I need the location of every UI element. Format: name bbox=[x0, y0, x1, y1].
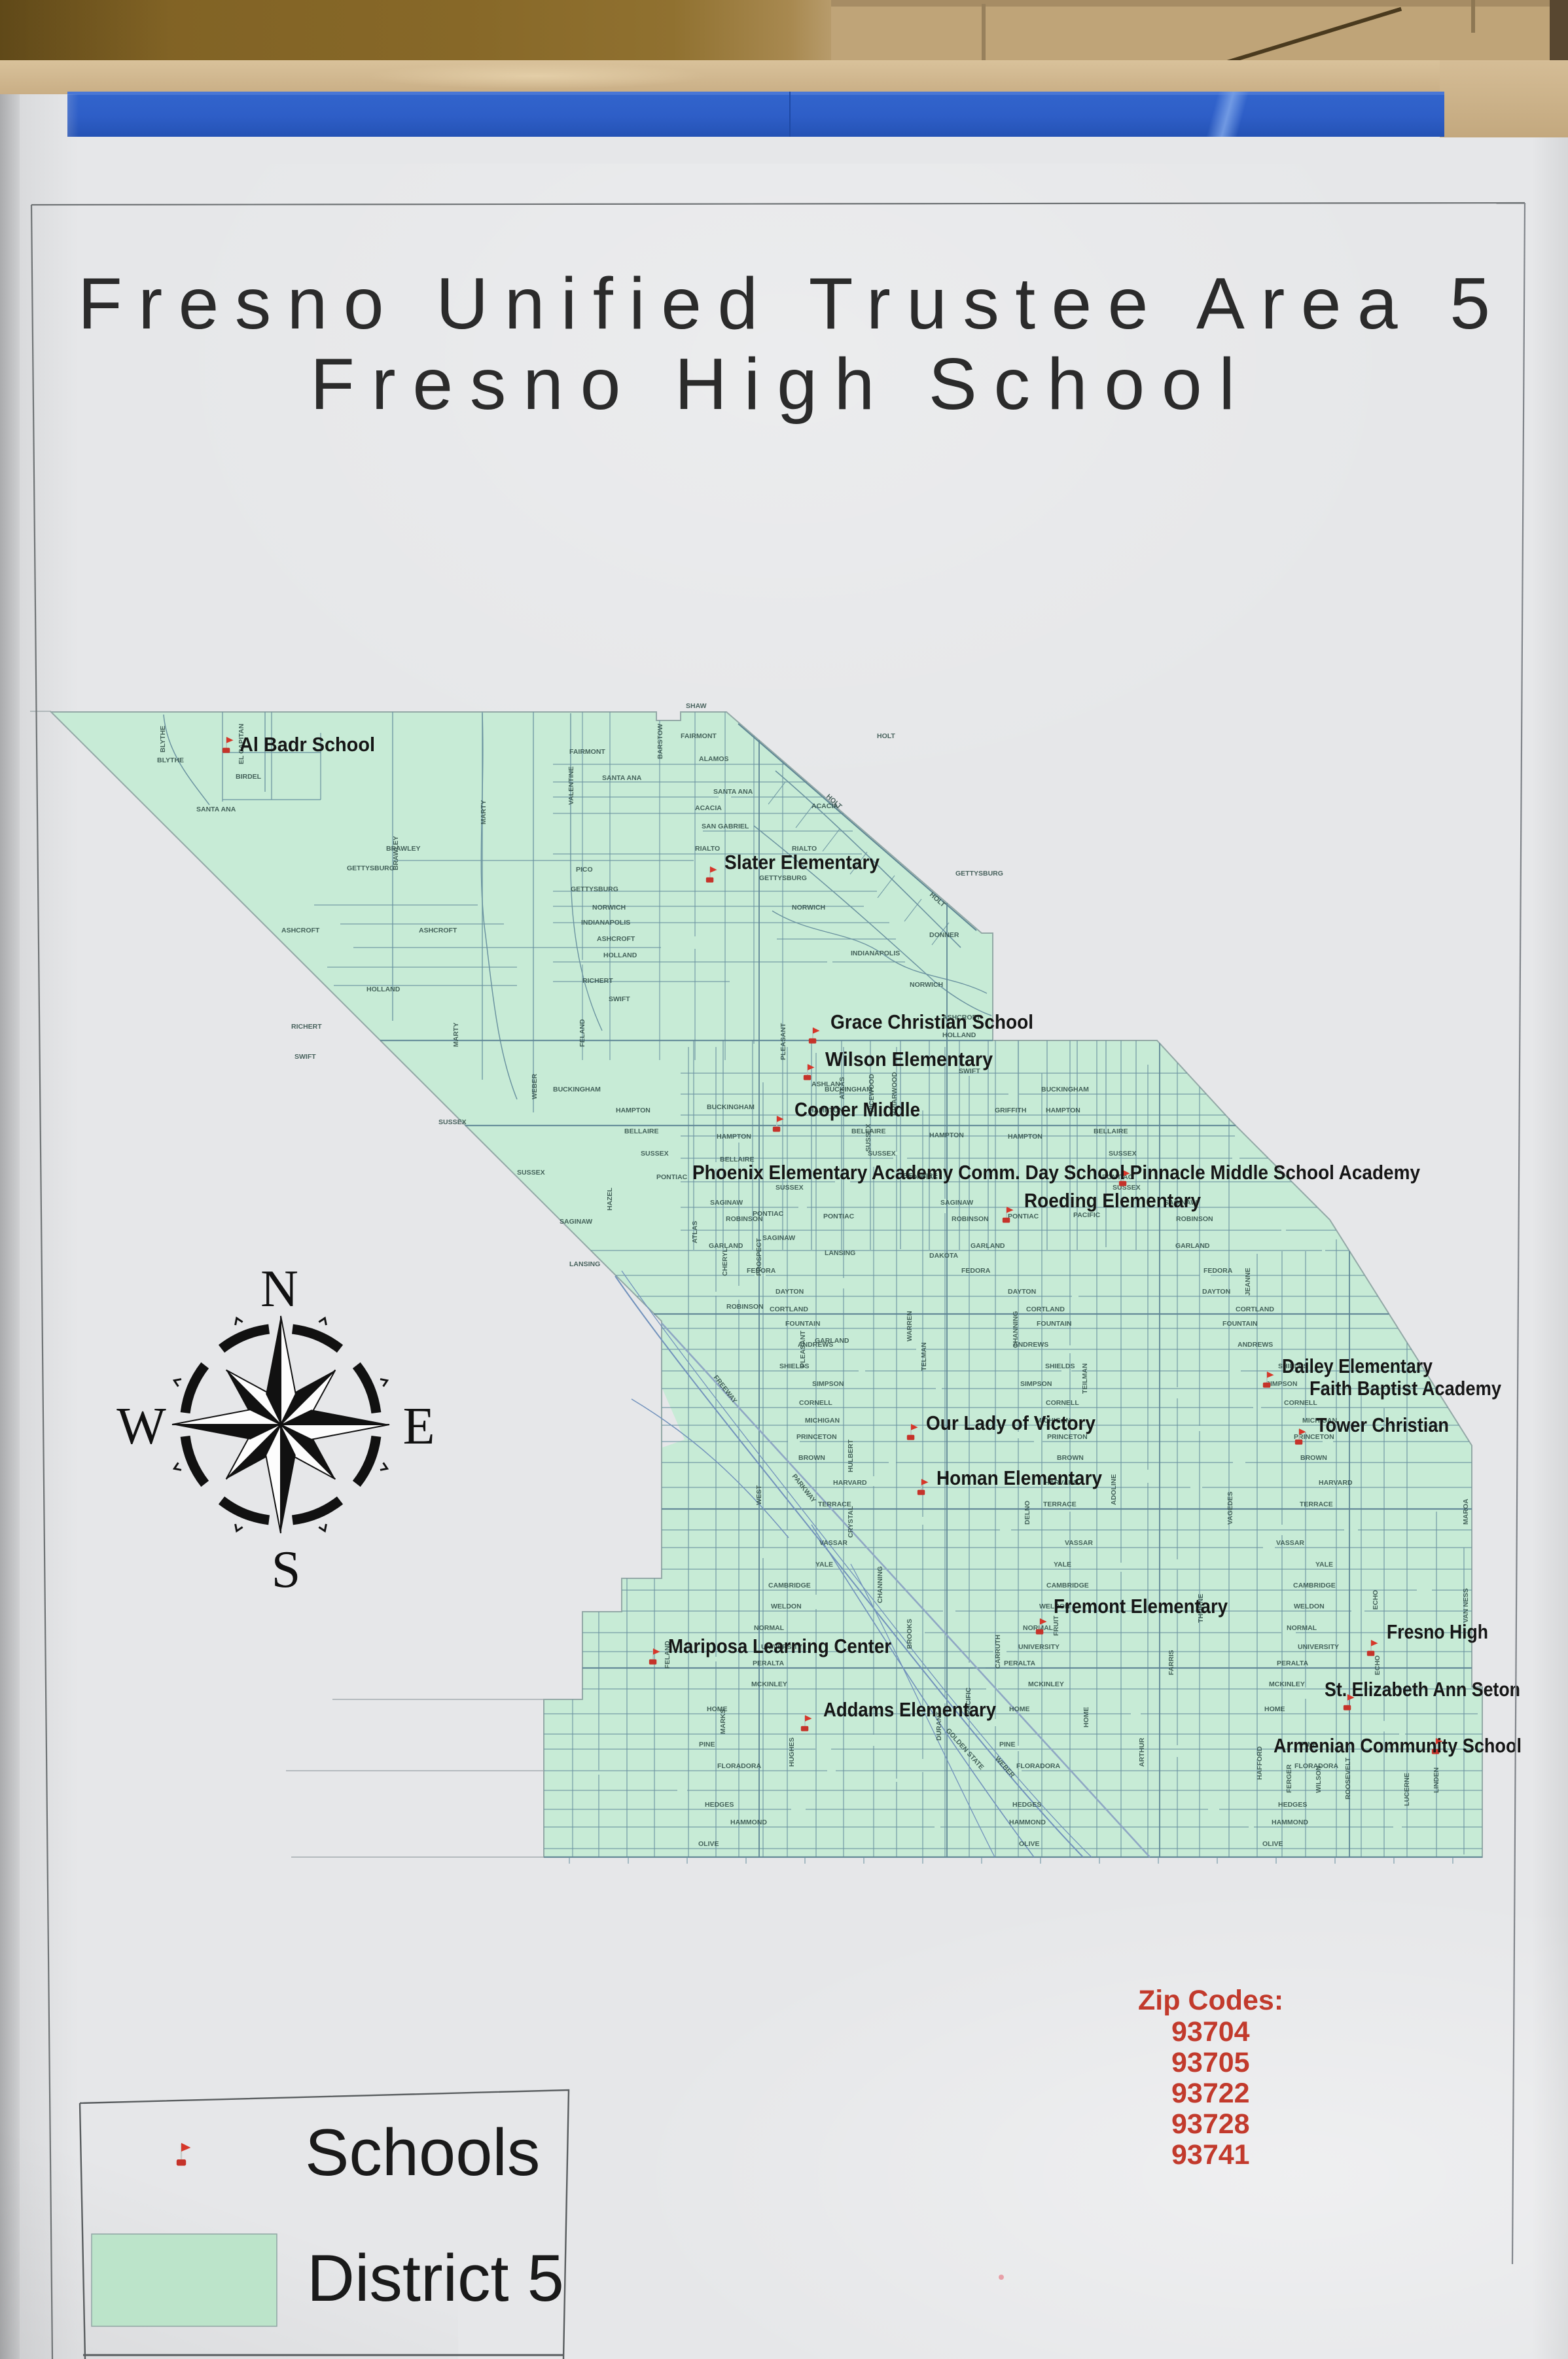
svg-text:Cooper Middle: Cooper Middle bbox=[794, 1098, 920, 1121]
svg-text:N: N bbox=[260, 1260, 298, 1318]
svg-text:PLEASANT: PLEASANT bbox=[799, 1330, 807, 1368]
svg-text:VALENTINE: VALENTINE bbox=[567, 766, 575, 805]
svg-text:CORNELL: CORNELL bbox=[1046, 1399, 1079, 1407]
svg-text:BLYTHE: BLYTHE bbox=[159, 726, 167, 753]
svg-text:FEDORA: FEDORA bbox=[1203, 1267, 1233, 1275]
svg-text:HAMPTON: HAMPTON bbox=[616, 1107, 650, 1114]
svg-text:Our Lady of Victory: Our Lady of Victory bbox=[926, 1411, 1096, 1434]
svg-text:LUCERNE: LUCERNE bbox=[1403, 1773, 1411, 1806]
svg-text:Armenian Community School: Armenian Community School bbox=[1274, 1734, 1522, 1757]
svg-text:HAMMOND: HAMMOND bbox=[730, 1818, 767, 1826]
svg-text:S: S bbox=[272, 1541, 301, 1599]
svg-text:SUSSEX: SUSSEX bbox=[1109, 1150, 1137, 1158]
svg-text:FLORADORA: FLORADORA bbox=[717, 1762, 761, 1770]
svg-text:SUSSEX: SUSSEX bbox=[775, 1184, 804, 1192]
svg-text:VAN NESS: VAN NESS bbox=[1462, 1588, 1470, 1623]
svg-text:Grace Christian School: Grace Christian School bbox=[830, 1010, 1033, 1033]
svg-text:ASHCROFT: ASHCROFT bbox=[597, 935, 635, 943]
svg-text:Fresno Unified Trustee Area 5: Fresno Unified Trustee Area 5 bbox=[78, 263, 1490, 344]
svg-text:SANTA ANA: SANTA ANA bbox=[602, 774, 642, 782]
svg-text:WARREN: WARREN bbox=[906, 1311, 914, 1341]
svg-text:PROSPECT: PROSPECT bbox=[755, 1238, 763, 1276]
svg-text:WEST: WEST bbox=[755, 1485, 763, 1505]
svg-text:UNIVERSITY: UNIVERSITY bbox=[1298, 1643, 1339, 1651]
svg-text:RICHERT: RICHERT bbox=[291, 1023, 322, 1031]
svg-text:93705: 93705 bbox=[1171, 2047, 1250, 2078]
svg-text:PLEASANT: PLEASANT bbox=[779, 1023, 787, 1060]
svg-text:ROBINSON: ROBINSON bbox=[726, 1303, 764, 1311]
svg-text:CRYSTAL: CRYSTAL bbox=[847, 1506, 855, 1538]
svg-text:WELDON: WELDON bbox=[771, 1603, 802, 1610]
svg-text:HOME: HOME bbox=[1264, 1705, 1285, 1713]
svg-text:GETTYSBURG: GETTYSBURG bbox=[759, 874, 807, 882]
svg-text:HAMPTON: HAMPTON bbox=[929, 1131, 964, 1139]
svg-text:MCKINLEY: MCKINLEY bbox=[751, 1680, 787, 1688]
svg-text:WEBER: WEBER bbox=[531, 1074, 539, 1100]
svg-text:ASHCROFT: ASHCROFT bbox=[419, 927, 457, 934]
svg-text:CHANNING: CHANNING bbox=[1012, 1311, 1020, 1348]
svg-text:HAMPTON: HAMPTON bbox=[1008, 1133, 1042, 1141]
svg-text:GARLAND: GARLAND bbox=[815, 1337, 849, 1345]
svg-text:TELMAN: TELMAN bbox=[920, 1342, 928, 1371]
svg-text:Roeding Elementary: Roeding Elementary bbox=[1024, 1189, 1202, 1212]
svg-text:INDIANAPOLIS: INDIANAPOLIS bbox=[581, 919, 630, 927]
svg-text:NORWICH: NORWICH bbox=[792, 904, 825, 912]
svg-text:HOLT: HOLT bbox=[877, 732, 895, 740]
svg-text:HULBERT: HULBERT bbox=[847, 1439, 855, 1472]
svg-text:ROOSEVELT: ROOSEVELT bbox=[1344, 1757, 1352, 1800]
svg-text:SHAW: SHAW bbox=[686, 702, 707, 710]
svg-text:PINE: PINE bbox=[699, 1741, 715, 1748]
svg-text:SIMPSON: SIMPSON bbox=[812, 1380, 844, 1388]
svg-text:MCKINLEY: MCKINLEY bbox=[1028, 1680, 1064, 1688]
svg-text:PACIFIC: PACIFIC bbox=[1073, 1211, 1101, 1219]
svg-text:PERALTA: PERALTA bbox=[1277, 1659, 1308, 1667]
svg-text:HOLLAND: HOLLAND bbox=[603, 951, 637, 959]
svg-text:HAMMOND: HAMMOND bbox=[1272, 1818, 1308, 1826]
svg-text:ATLAS: ATLAS bbox=[691, 1221, 699, 1243]
svg-text:VAGEDES: VAGEDES bbox=[1226, 1491, 1234, 1525]
svg-text:SHIELDS: SHIELDS bbox=[1045, 1362, 1075, 1370]
svg-text:SUSSEX: SUSSEX bbox=[517, 1169, 545, 1177]
svg-text:PERALTA: PERALTA bbox=[1004, 1659, 1035, 1667]
svg-text:YALE: YALE bbox=[1315, 1561, 1333, 1569]
svg-text:Al Badr School: Al Badr School bbox=[240, 733, 375, 756]
svg-text:SAGINAW: SAGINAW bbox=[710, 1199, 743, 1207]
svg-text:PONTIAC: PONTIAC bbox=[1008, 1213, 1039, 1220]
svg-text:CORTLAND: CORTLAND bbox=[1236, 1305, 1274, 1313]
svg-text:PRINCETON: PRINCETON bbox=[796, 1433, 837, 1441]
svg-text:TERRACE: TERRACE bbox=[1043, 1500, 1077, 1508]
svg-text:PONTIAC: PONTIAC bbox=[823, 1213, 855, 1220]
svg-text:PICO: PICO bbox=[576, 866, 593, 874]
svg-text:Homan Elementary: Homan Elementary bbox=[936, 1466, 1103, 1489]
svg-text:HARVARD: HARVARD bbox=[1319, 1479, 1353, 1487]
svg-text:OLIVE: OLIVE bbox=[1019, 1840, 1040, 1848]
svg-text:ARTHUR: ARTHUR bbox=[1138, 1737, 1146, 1767]
svg-text:RICHERT: RICHERT bbox=[582, 977, 613, 985]
svg-text:HUGHES: HUGHES bbox=[788, 1737, 796, 1767]
svg-text:HOLLAND: HOLLAND bbox=[366, 985, 401, 993]
svg-text:FOUNTAIN: FOUNTAIN bbox=[1222, 1320, 1257, 1328]
svg-text:PONTIAC: PONTIAC bbox=[753, 1210, 784, 1218]
svg-text:District 5: District 5 bbox=[307, 2242, 564, 2315]
svg-text:HAMMOND: HAMMOND bbox=[1009, 1818, 1046, 1826]
svg-text:GARLAND: GARLAND bbox=[1175, 1242, 1210, 1250]
svg-text:ATLAS: ATLAS bbox=[838, 1077, 846, 1099]
svg-text:Zip Codes:: Zip Codes: bbox=[1138, 1985, 1283, 2016]
svg-text:FELAND: FELAND bbox=[579, 1019, 586, 1047]
svg-text:CAMBRIDGE: CAMBRIDGE bbox=[768, 1582, 811, 1589]
svg-text:CARRUTH: CARRUTH bbox=[994, 1635, 1002, 1669]
svg-text:GARLAND: GARLAND bbox=[971, 1242, 1005, 1250]
svg-text:Slater Elementary: Slater Elementary bbox=[724, 851, 880, 874]
svg-text:93728: 93728 bbox=[1171, 2108, 1250, 2140]
svg-text:Schools: Schools bbox=[305, 2116, 540, 2190]
svg-text:MARTY: MARTY bbox=[452, 1023, 460, 1047]
svg-text:BELLAIRE: BELLAIRE bbox=[1094, 1127, 1128, 1135]
svg-text:Faith Baptist Academy: Faith Baptist Academy bbox=[1310, 1377, 1502, 1400]
svg-text:SUSSEX: SUSSEX bbox=[641, 1150, 669, 1158]
svg-text:ACACIA: ACACIA bbox=[695, 804, 722, 812]
svg-text:93722: 93722 bbox=[1171, 2078, 1250, 2109]
svg-text:OLIVE: OLIVE bbox=[1262, 1840, 1283, 1848]
svg-text:FEDORA: FEDORA bbox=[961, 1267, 991, 1275]
svg-text:BELLAIRE: BELLAIRE bbox=[624, 1127, 659, 1135]
svg-text:ROBINSON: ROBINSON bbox=[952, 1215, 989, 1223]
svg-text:Fresno High School: Fresno High School bbox=[310, 344, 1235, 425]
svg-text:HAFFORD: HAFFORD bbox=[1256, 1746, 1264, 1780]
svg-text:BIRDEL: BIRDEL bbox=[236, 773, 262, 781]
svg-text:WELDON: WELDON bbox=[1294, 1603, 1325, 1610]
svg-text:OLIVE: OLIVE bbox=[698, 1840, 719, 1848]
svg-text:DAKOTA: DAKOTA bbox=[929, 1252, 959, 1260]
svg-text:NORMAL: NORMAL bbox=[754, 1624, 785, 1632]
svg-text:INDIANAPOLIS: INDIANAPOLIS bbox=[851, 949, 900, 957]
svg-text:SWIFT: SWIFT bbox=[609, 995, 630, 1003]
svg-text:ASHLAN: ASHLAN bbox=[811, 1080, 840, 1088]
svg-text:FARRIS: FARRIS bbox=[1167, 1650, 1175, 1675]
svg-text:FOUNTAIN: FOUNTAIN bbox=[785, 1320, 820, 1328]
svg-text:HAZEL: HAZEL bbox=[606, 1187, 614, 1211]
svg-text:CHERYL: CHERYL bbox=[721, 1248, 729, 1276]
svg-text:NORWICH: NORWICH bbox=[910, 981, 943, 989]
svg-text:HAMPTON: HAMPTON bbox=[717, 1133, 751, 1141]
svg-text:SAGINAW: SAGINAW bbox=[940, 1199, 973, 1207]
svg-text:BROOKS: BROOKS bbox=[906, 1619, 914, 1649]
svg-text:SAN GABRIEL: SAN GABRIEL bbox=[702, 823, 749, 830]
svg-text:Tower Christian: Tower Christian bbox=[1316, 1413, 1449, 1436]
svg-text:ANDREWS: ANDREWS bbox=[1238, 1341, 1273, 1349]
svg-text:CORTLAND: CORTLAND bbox=[1026, 1305, 1065, 1313]
svg-text:SAGINAW: SAGINAW bbox=[762, 1234, 795, 1242]
svg-text:ECHO: ECHO bbox=[1372, 1590, 1380, 1610]
svg-text:GETTYSBURG: GETTYSBURG bbox=[955, 870, 1003, 878]
svg-text:HOME: HOME bbox=[1009, 1705, 1030, 1713]
svg-text:DONNER: DONNER bbox=[929, 931, 959, 939]
svg-text:W: W bbox=[116, 1398, 166, 1455]
svg-text:BUCKINGHAM: BUCKINGHAM bbox=[553, 1086, 601, 1093]
svg-text:BROWN: BROWN bbox=[1057, 1454, 1084, 1462]
svg-text:ECHO: ECHO bbox=[1374, 1656, 1381, 1675]
svg-text:BRAWLEY: BRAWLEY bbox=[386, 845, 421, 853]
svg-text:SUSSEX: SUSSEX bbox=[864, 1124, 872, 1152]
svg-text:CORNELL: CORNELL bbox=[1284, 1399, 1317, 1407]
svg-text:FAIRMONT: FAIRMONT bbox=[569, 748, 605, 756]
svg-text:WILSON: WILSON bbox=[1315, 1765, 1323, 1793]
svg-text:FLORADORA: FLORADORA bbox=[1016, 1762, 1060, 1770]
svg-text:SAGINAW: SAGINAW bbox=[560, 1218, 592, 1226]
svg-text:MAROA: MAROA bbox=[1462, 1499, 1470, 1525]
svg-text:Addams Elementary: Addams Elementary bbox=[823, 1698, 997, 1721]
svg-text:BLYTHE: BLYTHE bbox=[157, 756, 184, 764]
svg-text:MICHIGAN: MICHIGAN bbox=[805, 1417, 840, 1425]
svg-text:SIMPSON: SIMPSON bbox=[1020, 1380, 1052, 1388]
svg-text:VASSAR: VASSAR bbox=[1065, 1539, 1093, 1547]
svg-text:Mariposa Learning Center: Mariposa Learning Center bbox=[668, 1635, 891, 1658]
svg-text:PERALTA: PERALTA bbox=[753, 1659, 784, 1667]
svg-text:YALE: YALE bbox=[1054, 1561, 1071, 1569]
svg-text:CAMBRIDGE: CAMBRIDGE bbox=[1293, 1582, 1336, 1589]
svg-text:TEILMAN: TEILMAN bbox=[1081, 1363, 1089, 1394]
svg-text:BUCKINGHAM: BUCKINGHAM bbox=[707, 1103, 755, 1111]
svg-text:LINDEN: LINDEN bbox=[1433, 1767, 1440, 1793]
svg-text:BROWN: BROWN bbox=[798, 1454, 825, 1462]
svg-text:SUSSEX: SUSSEX bbox=[438, 1118, 467, 1126]
svg-text:DAYTON: DAYTON bbox=[775, 1288, 804, 1296]
svg-text:Fremont Elementary: Fremont Elementary bbox=[1054, 1595, 1228, 1618]
svg-text:MARTY: MARTY bbox=[480, 800, 488, 825]
svg-text:HEDGES: HEDGES bbox=[705, 1801, 734, 1809]
svg-text:GRIFFITH: GRIFFITH bbox=[995, 1107, 1026, 1114]
svg-text:NORWICH: NORWICH bbox=[592, 904, 626, 912]
svg-text:DAYTON: DAYTON bbox=[1202, 1288, 1230, 1296]
svg-text:LANSING: LANSING bbox=[569, 1260, 600, 1268]
svg-text:HARVARD: HARVARD bbox=[833, 1479, 867, 1487]
svg-text:93704: 93704 bbox=[1171, 2016, 1250, 2048]
svg-text:FERGER: FERGER bbox=[1285, 1764, 1293, 1793]
svg-text:PINE: PINE bbox=[999, 1741, 1016, 1748]
svg-text:NORMAL: NORMAL bbox=[1287, 1624, 1317, 1632]
svg-text:YALE: YALE bbox=[815, 1561, 833, 1569]
svg-text:TERRACE: TERRACE bbox=[1300, 1500, 1333, 1508]
svg-text:RIALTO: RIALTO bbox=[695, 845, 720, 853]
svg-text:CORNELL: CORNELL bbox=[799, 1399, 832, 1407]
svg-text:LANSING: LANSING bbox=[825, 1249, 855, 1257]
svg-text:CHANNING: CHANNING bbox=[876, 1566, 884, 1603]
svg-text:SANTA ANA: SANTA ANA bbox=[196, 806, 236, 813]
svg-text:CORTLAND: CORTLAND bbox=[770, 1305, 808, 1313]
svg-text:DELNO: DELNO bbox=[1024, 1500, 1031, 1525]
svg-text:BRAWLEY: BRAWLEY bbox=[392, 836, 400, 871]
svg-text:ROBINSON: ROBINSON bbox=[1176, 1215, 1213, 1223]
svg-text:HAMPTON: HAMPTON bbox=[1046, 1107, 1080, 1114]
svg-text:SWIFT: SWIFT bbox=[294, 1053, 316, 1061]
svg-text:FOUNTAIN: FOUNTAIN bbox=[1037, 1320, 1071, 1328]
svg-text:St. Elizabeth Ann Seton: St. Elizabeth Ann Seton bbox=[1325, 1678, 1520, 1701]
svg-text:Dailey Elementary: Dailey Elementary bbox=[1282, 1355, 1433, 1377]
svg-text:ASHCROFT: ASHCROFT bbox=[281, 927, 320, 934]
svg-text:HEDGES: HEDGES bbox=[1278, 1801, 1307, 1809]
svg-text:Fresno High: Fresno High bbox=[1387, 1620, 1488, 1643]
svg-text:BARSTOW: BARSTOW bbox=[656, 724, 664, 759]
svg-text:FRUIT: FRUIT bbox=[1052, 1616, 1060, 1636]
svg-text:SANTA ANA: SANTA ANA bbox=[713, 788, 753, 796]
svg-text:Wilson Elementary: Wilson Elementary bbox=[825, 1048, 993, 1071]
svg-text:VASSAR: VASSAR bbox=[1276, 1539, 1304, 1547]
svg-text:MCKINLEY: MCKINLEY bbox=[1269, 1680, 1305, 1688]
svg-text:BUCKINGHAM: BUCKINGHAM bbox=[1041, 1086, 1089, 1093]
svg-text:JEANNE: JEANNE bbox=[1244, 1268, 1252, 1296]
svg-text:CAMBRIDGE: CAMBRIDGE bbox=[1046, 1582, 1089, 1589]
svg-text:HEDGES: HEDGES bbox=[1012, 1801, 1041, 1809]
svg-text:E: E bbox=[403, 1398, 435, 1455]
svg-text:VASSAR: VASSAR bbox=[819, 1539, 847, 1547]
svg-text:GETTYSBURG: GETTYSBURG bbox=[347, 864, 395, 872]
svg-text:Phoenix Elementary Academy Com: Phoenix Elementary Academy Comm. Day Sch… bbox=[692, 1161, 1421, 1184]
svg-text:MARKS: MARKS bbox=[719, 1709, 727, 1735]
svg-text:FAIRMONT: FAIRMONT bbox=[681, 732, 717, 740]
svg-text:ALAMOS: ALAMOS bbox=[699, 755, 729, 763]
svg-text:DAYTON: DAYTON bbox=[1008, 1288, 1036, 1296]
svg-text:GETTYSBURG: GETTYSBURG bbox=[571, 885, 618, 893]
svg-text:UNIVERSITY: UNIVERSITY bbox=[1018, 1643, 1060, 1651]
svg-text:ADOLINE: ADOLINE bbox=[1110, 1474, 1118, 1505]
svg-text:BROWN: BROWN bbox=[1300, 1454, 1327, 1462]
svg-text:93741: 93741 bbox=[1171, 2139, 1250, 2171]
svg-text:HOME: HOME bbox=[1082, 1707, 1090, 1728]
svg-text:PONTIAC: PONTIAC bbox=[656, 1173, 688, 1181]
